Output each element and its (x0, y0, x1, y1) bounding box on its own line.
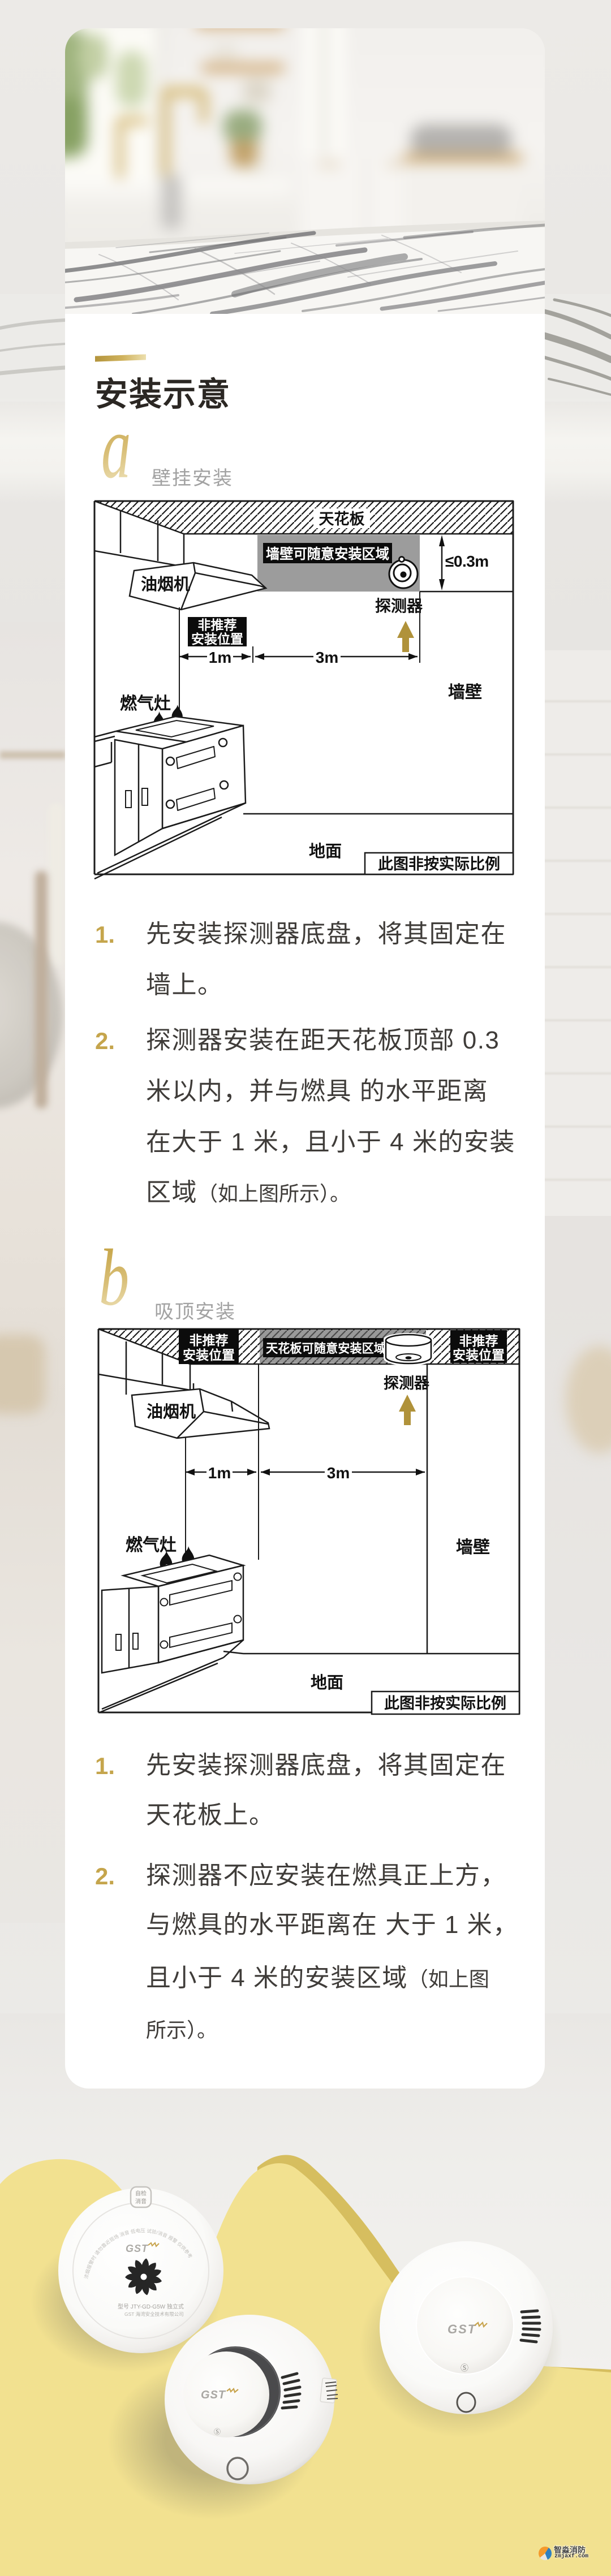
svg-text:自检: 自检 (135, 2190, 147, 2197)
svg-text:Ⓢ: Ⓢ (214, 2428, 221, 2436)
svg-text:安装位置: 安装位置 (191, 632, 243, 646)
svg-text:探测器: 探测器 (384, 1375, 430, 1392)
svg-text:消音: 消音 (135, 2198, 147, 2205)
svg-text:安装位置: 安装位置 (453, 1348, 505, 1362)
svg-text:油烟机: 油烟机 (147, 1403, 196, 1421)
svg-text:油烟机: 油烟机 (141, 575, 190, 594)
svg-text:非推荐: 非推荐 (198, 618, 237, 632)
svg-text:此图非按实际比例: 此图非按实际比例 (384, 1694, 506, 1712)
svg-text:GST: GST (201, 2389, 226, 2401)
svg-text:燃气灶: 燃气灶 (120, 694, 171, 713)
svg-text:非推荐: 非推荐 (459, 1334, 498, 1348)
svg-text:探测器: 探测器 (375, 597, 423, 615)
svg-text:地面: 地面 (311, 1673, 343, 1692)
svg-text:燃气灶: 燃气灶 (126, 1536, 177, 1555)
svg-text:此图非按实际比例: 此图非按实际比例 (378, 855, 500, 873)
svg-text:墙壁: 墙壁 (456, 1538, 490, 1557)
svg-text:1m: 1m (208, 1464, 231, 1482)
svg-text:墙壁可随意安装区域: 墙壁可随意安装区域 (266, 546, 389, 562)
svg-text:地面: 地面 (309, 842, 342, 861)
svg-text:3m: 3m (316, 649, 338, 666)
svg-text:GST 海湾安全技术有限公司: GST 海湾安全技术有限公司 (124, 2311, 184, 2317)
svg-text:非推荐: 非推荐 (190, 1333, 229, 1348)
svg-text:安装位置: 安装位置 (183, 1348, 235, 1362)
svg-text:3m: 3m (327, 1464, 350, 1482)
svg-text:Ⓢ: Ⓢ (461, 2363, 468, 2372)
svg-text:≤0.3m: ≤0.3m (445, 553, 489, 570)
svg-text:GST: GST (126, 2243, 149, 2254)
svg-text:墙壁: 墙壁 (448, 683, 482, 702)
svg-text:型号 JTY-GD-G5W 独立式: 型号 JTY-GD-G5W 独立式 (118, 2303, 184, 2310)
svg-text:天花板可随意安装区域: 天花板可随意安装区域 (266, 1341, 386, 1356)
svg-text:1m: 1m (209, 649, 231, 666)
svg-text:GST: GST (448, 2322, 476, 2336)
svg-text:天花板: 天花板 (319, 511, 365, 528)
